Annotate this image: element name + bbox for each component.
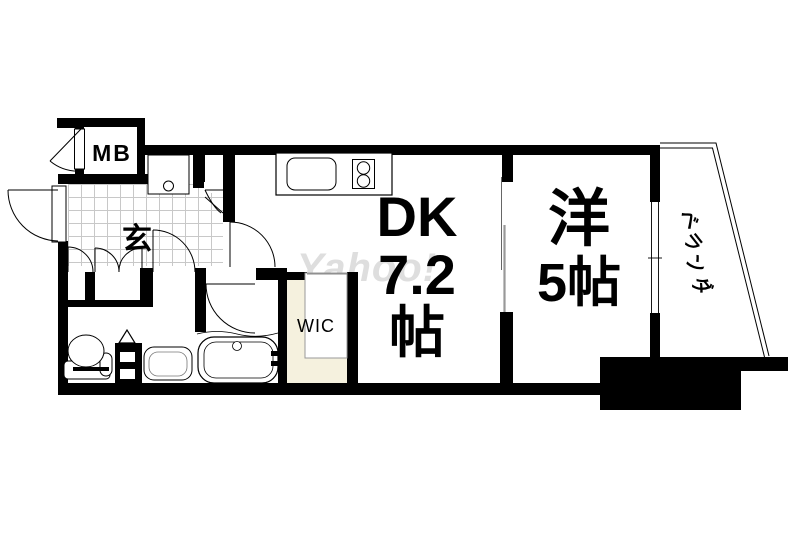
entrance-door xyxy=(8,186,66,242)
western-room-line1: 洋 xyxy=(508,186,650,254)
dk-line3: 帖 xyxy=(352,304,482,362)
hall-door xyxy=(230,222,275,267)
dk-room-label: DK 7.2 帖 xyxy=(352,188,482,362)
bathroom-door-arc xyxy=(206,284,255,333)
toilet xyxy=(64,335,112,379)
entrance-label: 玄 xyxy=(118,214,156,258)
sliding-door xyxy=(502,177,505,312)
western-room-line2: 5帖 xyxy=(508,254,650,312)
dk-line2: 7.2 xyxy=(352,246,482,304)
burner xyxy=(357,162,369,174)
washroom-door-arc xyxy=(153,230,195,272)
vanity-basin xyxy=(144,347,192,380)
floorplan: Yahoo! xyxy=(0,0,800,537)
bath-faucet xyxy=(271,351,281,356)
hall-door-arc xyxy=(230,222,275,267)
entrance-door-arc xyxy=(8,190,58,241)
veranda-label: ベ ラ ン ダ xyxy=(674,205,720,305)
veranda-window xyxy=(648,202,662,313)
meter-box-label: MB xyxy=(84,140,140,167)
bathtub xyxy=(197,332,281,384)
kitchen-sink xyxy=(287,158,336,190)
hall-step xyxy=(204,182,223,213)
shoe-cabinet xyxy=(148,155,189,194)
burner xyxy=(357,175,369,187)
wic-label: WIC xyxy=(294,316,338,337)
bathroom-door xyxy=(206,284,255,333)
washer-partition xyxy=(115,330,142,383)
dk-line1: DK xyxy=(352,188,482,246)
washroom-door xyxy=(153,230,195,272)
western-room-label: 洋 5帖 xyxy=(508,186,650,312)
